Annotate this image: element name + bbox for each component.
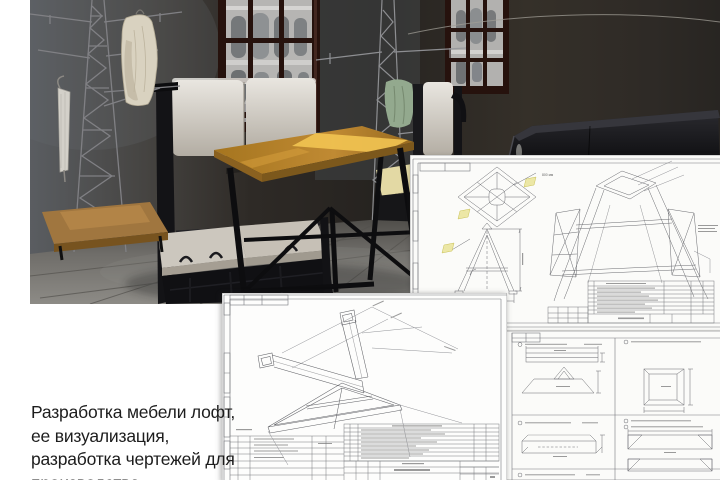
dim-label: 800 мм — [542, 173, 554, 177]
umbrella — [58, 76, 70, 182]
caption-line: разработка чертежей для — [31, 448, 241, 472]
portfolio-collage: 800 мм — [0, 0, 720, 480]
drawing-sheet-front — [222, 293, 507, 480]
green-cloth — [385, 79, 414, 127]
window-small — [445, 0, 509, 94]
caption-line: ее визуализация, — [31, 425, 241, 449]
caption-line: Разработка мебели лофт, — [31, 401, 241, 425]
caption-text: Разработка мебели лофт, ее визуализация,… — [31, 401, 241, 480]
caption-line: производства — [31, 472, 241, 480]
drawing-sheet-details — [498, 331, 720, 480]
